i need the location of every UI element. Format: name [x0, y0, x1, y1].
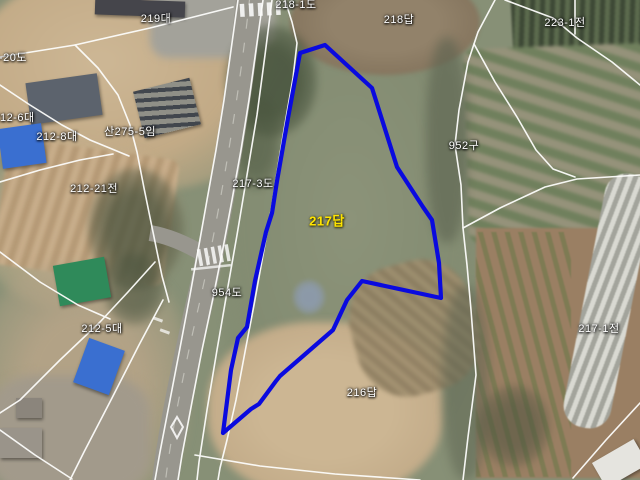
parcel-boundary-line — [195, 455, 420, 480]
parcel-boundary-line — [0, 262, 155, 413]
parcel-boundary-line — [75, 45, 169, 302]
parcel-label: 217-3도 — [232, 175, 273, 191]
map-overlay-layer — [0, 0, 640, 480]
parcel-label: 산275-5임 — [104, 123, 156, 139]
parcel-label: 216답 — [347, 384, 377, 400]
satellite-map-canvas[interactable]: 219대 218-1도 218답 223-1전 212-20도 212-6대 2… — [0, 0, 640, 480]
parcel-boundary-line — [0, 252, 110, 319]
highlighted-parcel-outline[interactable] — [223, 45, 441, 433]
parcel-boundary-line — [474, 44, 575, 177]
highlighted-parcel-label: 217답 — [309, 211, 345, 230]
parcel-boundary-line — [573, 403, 640, 478]
parcel-label: 212-21전 — [70, 180, 118, 196]
parcel-label: 212-8대 — [36, 128, 77, 144]
parcel-boundary-line — [505, 0, 640, 85]
parcel-label: 212-6대 — [0, 109, 35, 125]
parcel-boundary-line — [0, 7, 233, 57]
parcel-boundary-line — [0, 430, 72, 479]
parcel-label: 954도 — [212, 284, 242, 300]
road-marking — [160, 328, 170, 334]
parcel-boundary-line — [463, 175, 640, 228]
parcel-label: 223-1전 — [544, 14, 585, 30]
parcel-label: 212-5대 — [81, 320, 122, 336]
parcel-boundary-line — [0, 154, 113, 182]
parcel-label: 212-20도 — [0, 49, 27, 65]
parcel-label: 218답 — [384, 11, 414, 27]
parcel-label: 952구 — [449, 137, 479, 153]
parcel-label: 217-1전 — [578, 320, 619, 336]
parcel-label: 219대 — [141, 10, 171, 26]
side-road-surface — [150, 233, 205, 255]
parcel-label: 218-1도 — [275, 0, 316, 12]
